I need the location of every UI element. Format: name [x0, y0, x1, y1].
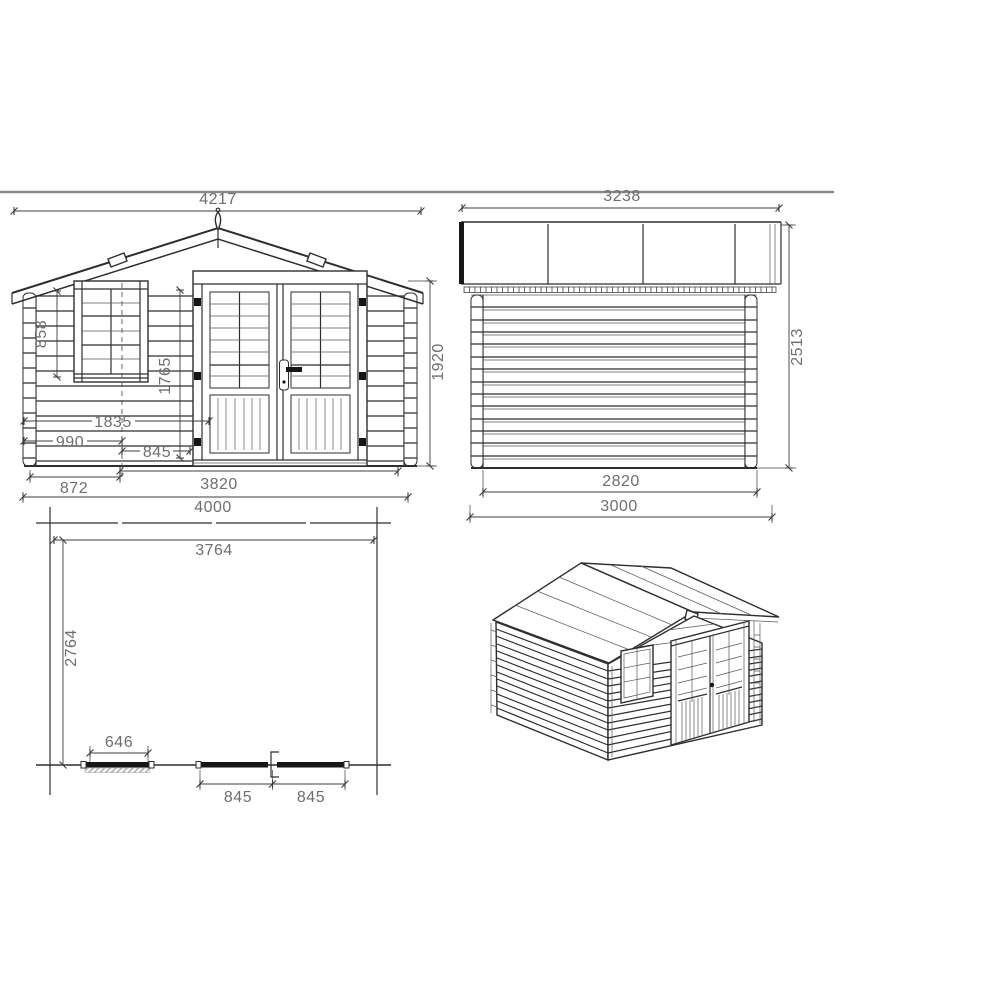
log-ends-left [23, 293, 36, 466]
technical-drawing-page: 4217 858 1765 1920 1835 990 845 872 3820… [0, 0, 1000, 1000]
dim-label-overall-depth: 3000 [600, 498, 638, 515]
log-ends-right [404, 293, 417, 466]
front-elevation-view: 4217 858 1765 1920 1835 990 845 872 3820… [12, 191, 447, 516]
door-hinge [359, 298, 366, 306]
floor-plan-view: 3764 2764 646 845 845 [36, 507, 391, 806]
dim-label-overall-width: 4000 [194, 499, 232, 516]
dim-label-roof-width: 4217 [199, 191, 237, 208]
dim-label-wall-depth: 2820 [602, 473, 640, 490]
door-knob-3d [710, 683, 714, 687]
door-hinge [359, 438, 366, 446]
plan-door-leaf-right [277, 762, 345, 768]
dim-label-door-leaf: 845 [143, 444, 171, 461]
dim-label-door-leaf-right: 845 [297, 789, 325, 806]
plan-door-leaf-left [200, 762, 268, 768]
cabin-window-3d [621, 645, 653, 703]
dim-label-window-opening: 646 [105, 734, 133, 751]
dim-label-left-to-window: 872 [60, 480, 88, 497]
dim-label-left-to-door: 1835 [94, 414, 132, 431]
front-window [74, 281, 148, 382]
roof-board-edge [464, 287, 776, 293]
dim-label-overall-height: 2513 [789, 328, 806, 366]
dim-label-roof-depth: 3238 [603, 188, 641, 205]
door-handle-lever [286, 367, 302, 372]
front-double-door [193, 271, 367, 466]
drawing-svg: 4217 858 1765 1920 1835 990 845 872 3820… [0, 0, 1000, 1000]
dim-label-door-height: 1765 [157, 357, 174, 395]
dim-label-wall-height: 1920 [430, 343, 447, 381]
dim-label-left-to-window-center: 990 [56, 434, 84, 451]
dim-label-window-height: 858 [33, 320, 50, 348]
dim-label-interior-depth: 2764 [63, 629, 80, 667]
dim-label-door-leaf-left: 845 [224, 789, 252, 806]
door-hinge [194, 298, 201, 306]
side-elevation-view: 3238 2513 2820 3000 [459, 188, 806, 523]
roof-finial [215, 212, 220, 230]
perspective-view [491, 563, 779, 760]
plan-window [85, 762, 150, 768]
door-handle-plate [280, 360, 289, 390]
roof-brace-left [108, 253, 127, 267]
side-roof [459, 222, 781, 293]
roof-brace-right [307, 253, 326, 267]
door-hinge [359, 372, 366, 380]
plan-window-sill [85, 768, 150, 773]
dim-label-interior-width: 3764 [195, 542, 233, 559]
door-hinge [194, 372, 201, 380]
door-hinge [194, 438, 201, 446]
dim-label-wall-width: 3820 [200, 476, 238, 493]
